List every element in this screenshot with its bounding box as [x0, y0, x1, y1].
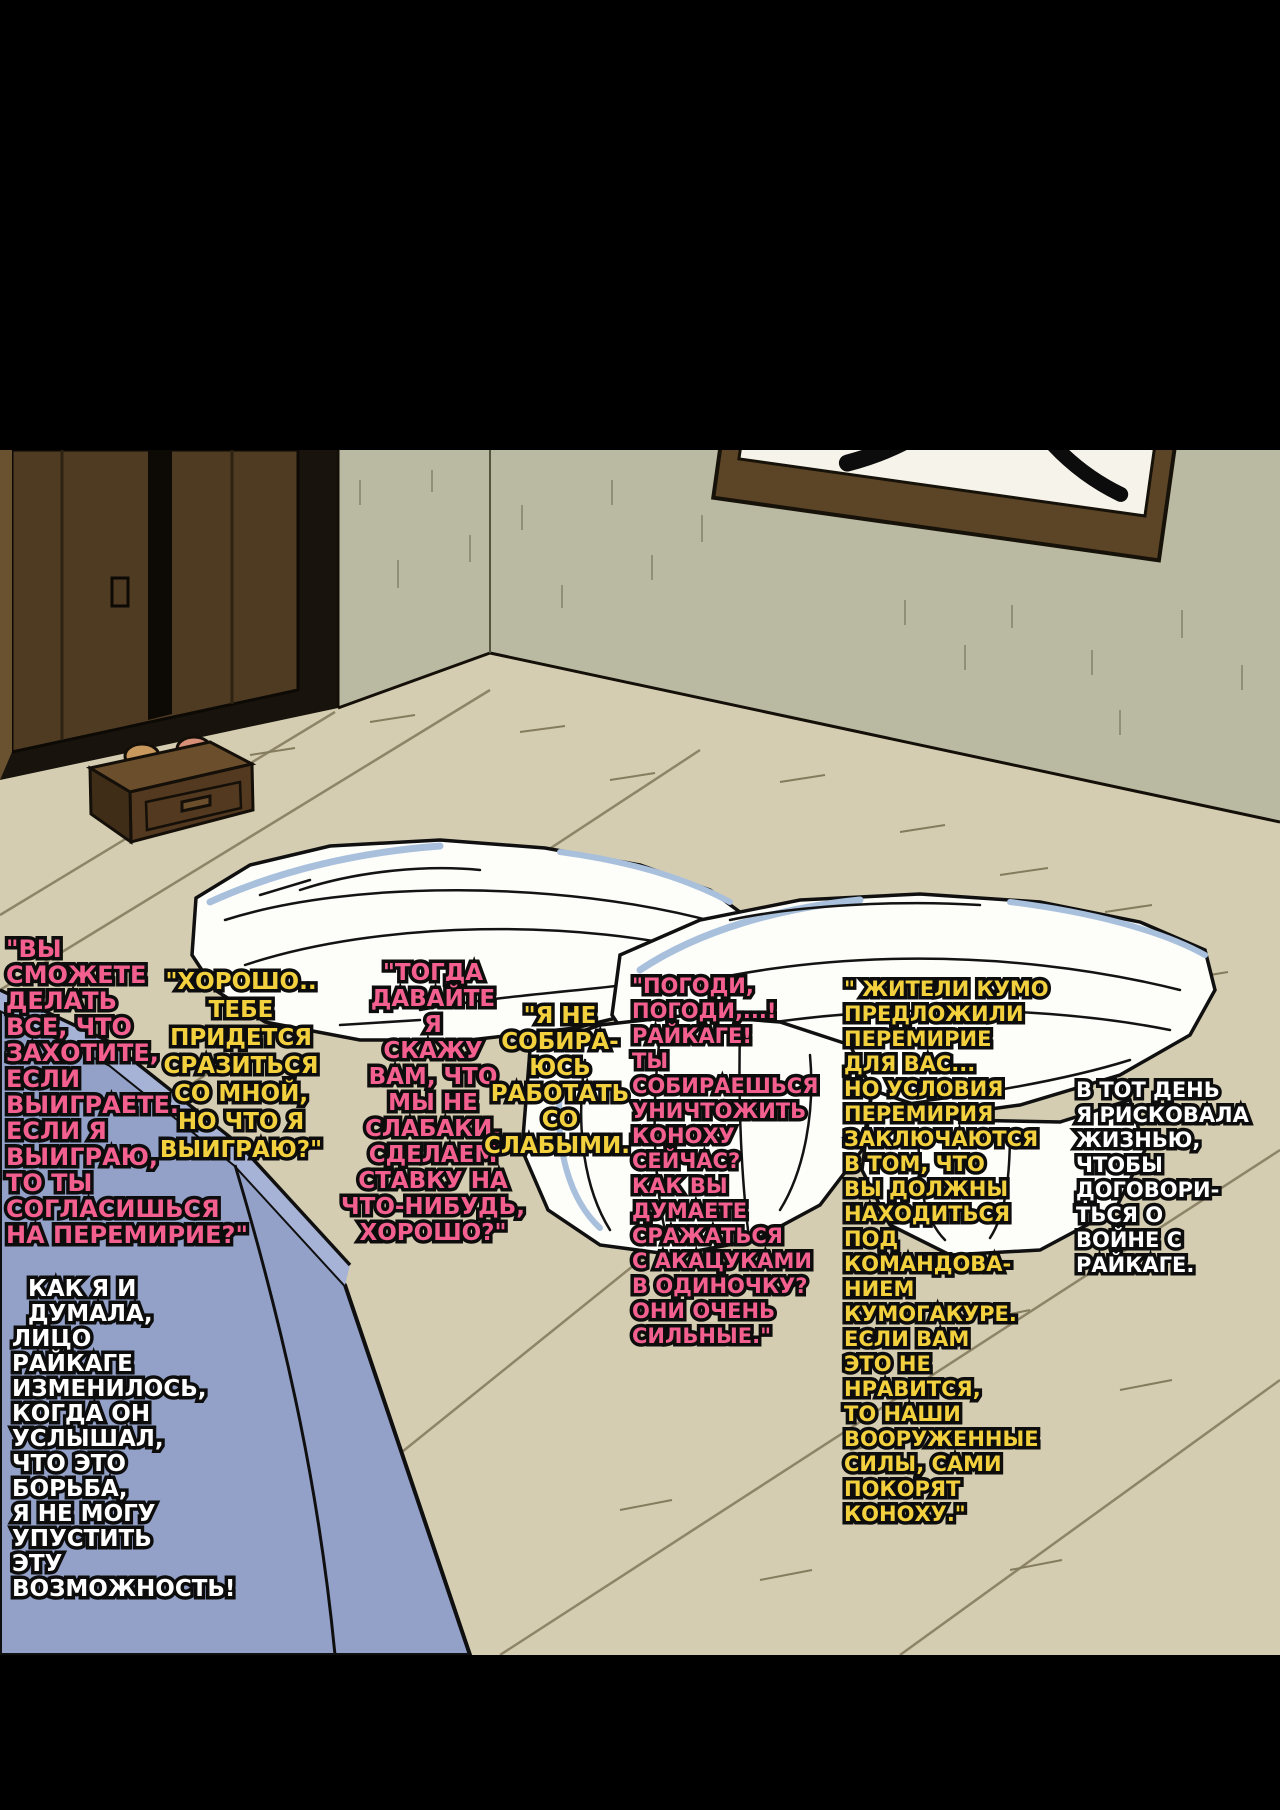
door-gap [148, 450, 172, 720]
speech-text-yellow-weak: "Я НЕ СОБИРА- ЮСЬ РАБОТАТЬ СО СЛАБЫМИ." [484, 1003, 636, 1159]
narration-text-left: КАК Я И ДУМАЛА, ЛИЦО РАЙКАГЕ ИЗМЕНИЛОСЬ,… [12, 1277, 254, 1602]
comic-page: "ВЫ СМОЖЕТЕ ДЕЛАТЬ ВСЕ, ЧТО ЗАХОТИТЕ, ЕС… [0, 0, 1280, 1810]
speech-text-yellow-fight: "ХОРОШО.. ТЕБЕ ПРИДЕТСЯ СРАЗИТЬСЯ СО МНО… [148, 968, 334, 1164]
narration-text-right: В ТОТ ДЕНЬ Я РИСКОВАЛА ЖИЗНЬЮ, ЧТОБЫ ДОГ… [1076, 1078, 1278, 1278]
manga-panel: "ВЫ СМОЖЕТЕ ДЕЛАТЬ ВСЕ, ЧТО ЗАХОТИТЕ, ЕС… [0, 450, 1280, 1655]
speech-text-yellow-truce: " ЖИТЕЛИ КУМО ПРЕДЛОЖИЛИ ПЕРЕМИРИЕ ДЛЯ В… [844, 977, 1076, 1527]
speech-text-pink-wait: "ПОГОДИ, ПОГОДИ,...! РАЙКАГЕ! ТЫ СОБИРАЕ… [632, 974, 848, 1349]
